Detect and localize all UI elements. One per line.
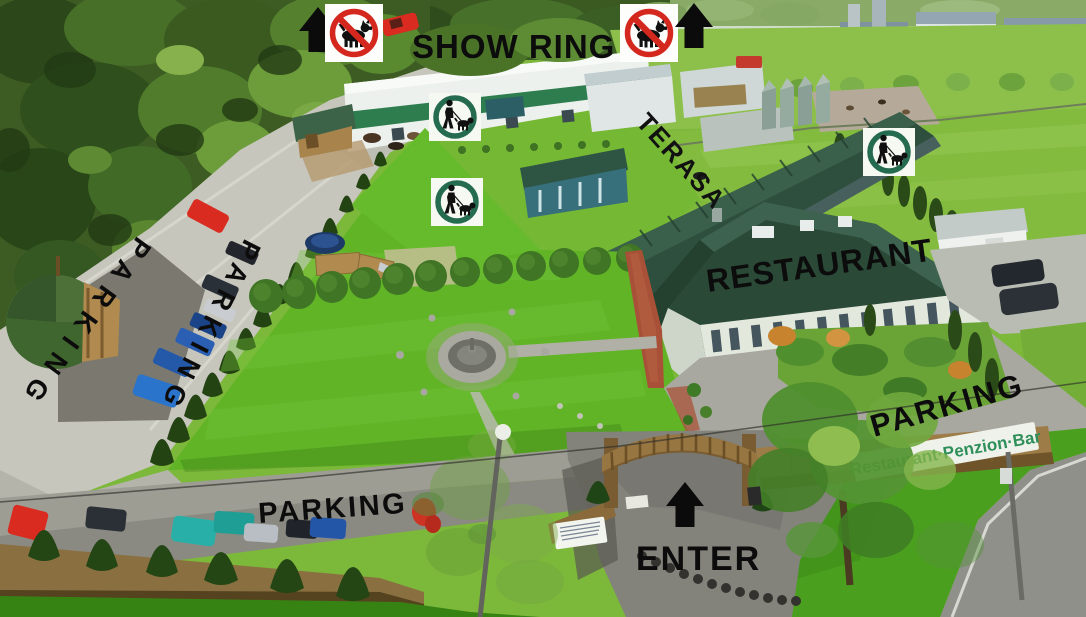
svg-text:SHOW RING: SHOW RING [412, 28, 615, 65]
svg-text:ENTER: ENTER [636, 540, 761, 578]
